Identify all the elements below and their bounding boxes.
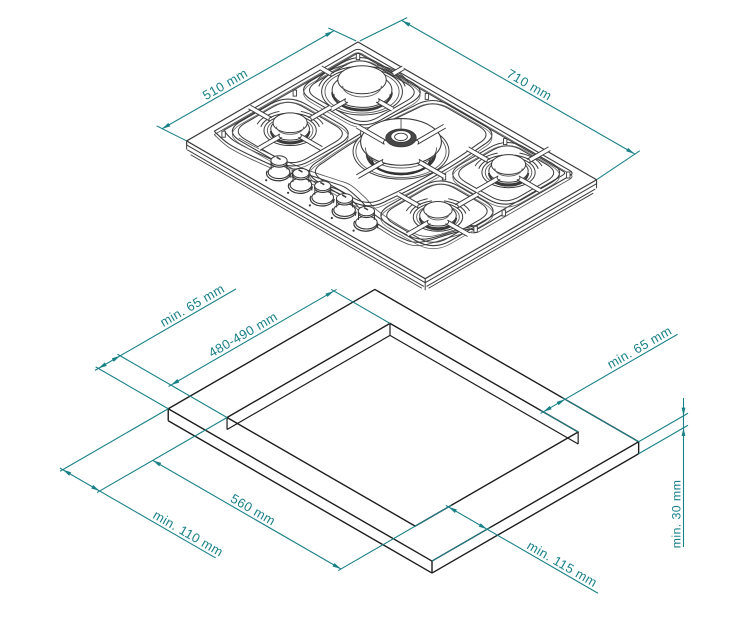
svg-text:min. 30 mm: min. 30 mm xyxy=(669,480,683,549)
